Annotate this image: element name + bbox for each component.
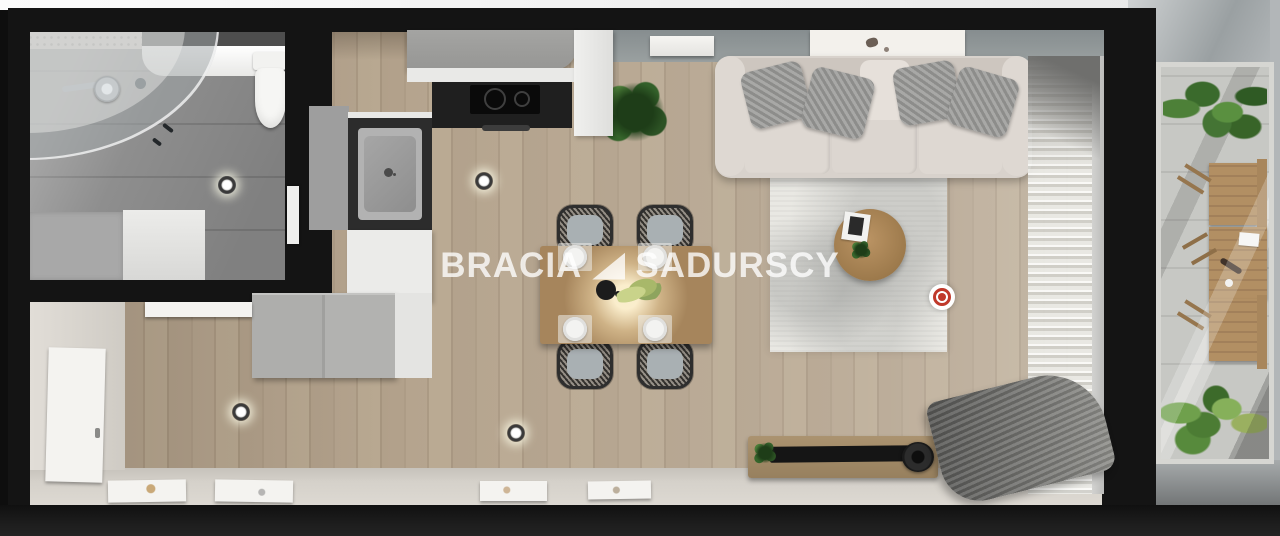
wall-top [8,8,1156,32]
tv [770,445,924,463]
watermark-logo-icon [592,253,625,280]
oven-handle [482,125,530,131]
shower-head-icon [94,76,120,102]
picture-frame-3 [480,481,547,501]
ceiling-light-bathroom [218,176,236,194]
watermark-text-left: BRACIA [440,246,582,286]
entry-door-panel [45,347,105,482]
chair-cushion [567,215,603,245]
plate-3 [563,317,587,341]
radiator-panel [650,36,714,56]
entry-door-handle [95,428,100,438]
bathroom-door [287,186,299,244]
cooktop-burner-1 [484,88,506,110]
balcony-shadow-overlay [1161,67,1269,459]
chair-cushion [567,349,603,379]
kitchen-upper-cabinets [407,30,577,70]
dining-chair-bottom-left [557,339,613,389]
wardrobe-side [395,293,432,378]
picture-frame-2 [215,479,293,502]
plate-4 [643,317,667,341]
bathroom-door-open-panel [145,302,252,317]
chair-cushion [647,215,683,245]
shower-knob [135,78,146,89]
picture-frame-4 [588,480,651,499]
balcony [1156,62,1274,464]
watermark-text-right: SADURSCY [635,246,839,286]
floorplan-render: BRACIA SADURSCY [0,0,1280,536]
toilet-bowl [255,68,286,128]
bathroom-bright-floor [123,210,205,280]
kitchen-side-cabinet [309,106,349,230]
dining-chair-bottom-right [637,339,693,389]
curtain-drape-top [1028,56,1100,176]
wall-left [8,8,30,508]
hotspot-marker[interactable] [929,284,955,310]
watermark: BRACIA SADURSCY [400,244,880,288]
coffee-table-magazine [848,216,864,236]
kitchen-tall-unit [574,30,613,136]
wall-art-panel [810,30,965,58]
tv-console-plant [752,440,778,466]
chair-cushion [647,349,683,379]
ceiling-light-living [507,424,525,442]
bathroom-mat [28,212,123,280]
picture-frame-1 [108,479,186,502]
speaker [902,442,934,472]
wall-right [1102,8,1156,508]
wardrobe [252,293,395,378]
wall-art-dot [884,47,889,52]
outside-bottom-band [0,505,1280,536]
ceiling-light-hall [232,403,250,421]
kitchen-counter-edge [407,68,577,82]
sofa-armrest-left [715,56,745,176]
kitchen-faucet [384,168,393,177]
hotspot-dot [938,293,946,301]
outside-below-balcony [1156,460,1280,508]
ceiling-light-kitchen [475,172,493,190]
cooktop-burner-2 [514,91,530,107]
